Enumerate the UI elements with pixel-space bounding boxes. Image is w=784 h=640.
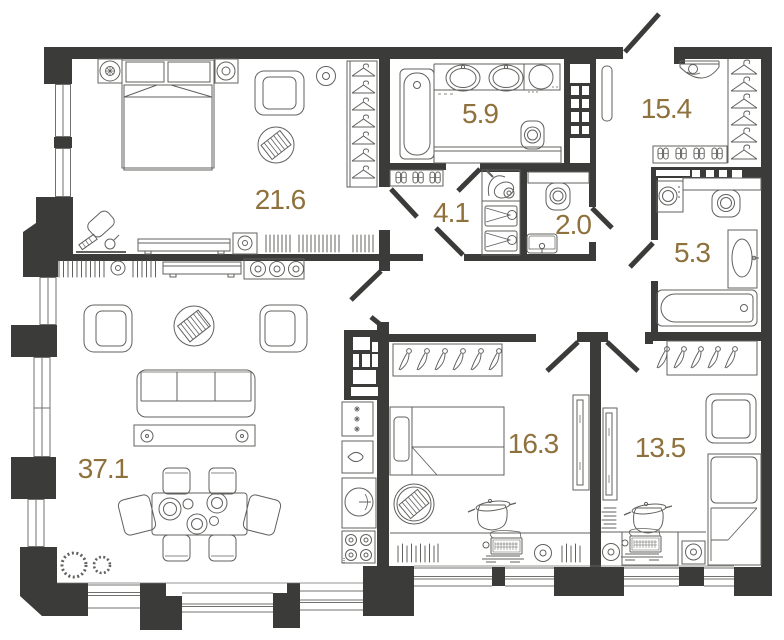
svg-text:15.4: 15.4 [641, 93, 692, 124]
svg-text:5.9: 5.9 [462, 98, 498, 129]
svg-text:13.5: 13.5 [635, 432, 686, 463]
svg-text:16.3: 16.3 [508, 428, 559, 459]
svg-text:2.0: 2.0 [555, 209, 591, 240]
svg-text:5.3: 5.3 [674, 237, 710, 268]
svg-text:37.1: 37.1 [78, 453, 129, 484]
svg-text:21.6: 21.6 [255, 184, 306, 215]
svg-text:4.1: 4.1 [433, 197, 469, 228]
